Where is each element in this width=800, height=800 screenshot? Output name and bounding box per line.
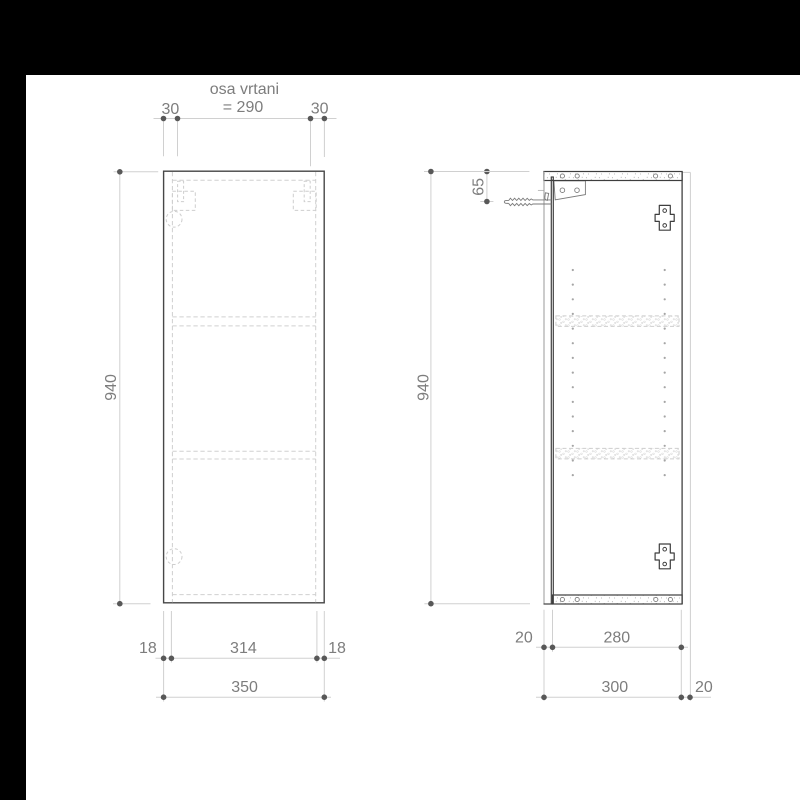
svg-text:18: 18 — [139, 640, 157, 657]
svg-text:65: 65 — [471, 178, 488, 196]
svg-text:= 290: = 290 — [223, 99, 264, 116]
svg-text:350: 350 — [231, 679, 258, 696]
svg-text:20: 20 — [515, 630, 533, 647]
svg-text:280: 280 — [603, 630, 630, 647]
svg-text:osa vrtani: osa vrtani — [210, 81, 279, 98]
svg-text:314: 314 — [230, 640, 257, 657]
svg-text:30: 30 — [311, 100, 329, 117]
svg-text:20: 20 — [695, 679, 713, 696]
svg-text:30: 30 — [162, 101, 180, 118]
svg-text:300: 300 — [601, 679, 628, 696]
svg-text:940: 940 — [416, 374, 433, 401]
svg-text:18: 18 — [328, 640, 346, 657]
svg-text:940: 940 — [103, 374, 120, 401]
